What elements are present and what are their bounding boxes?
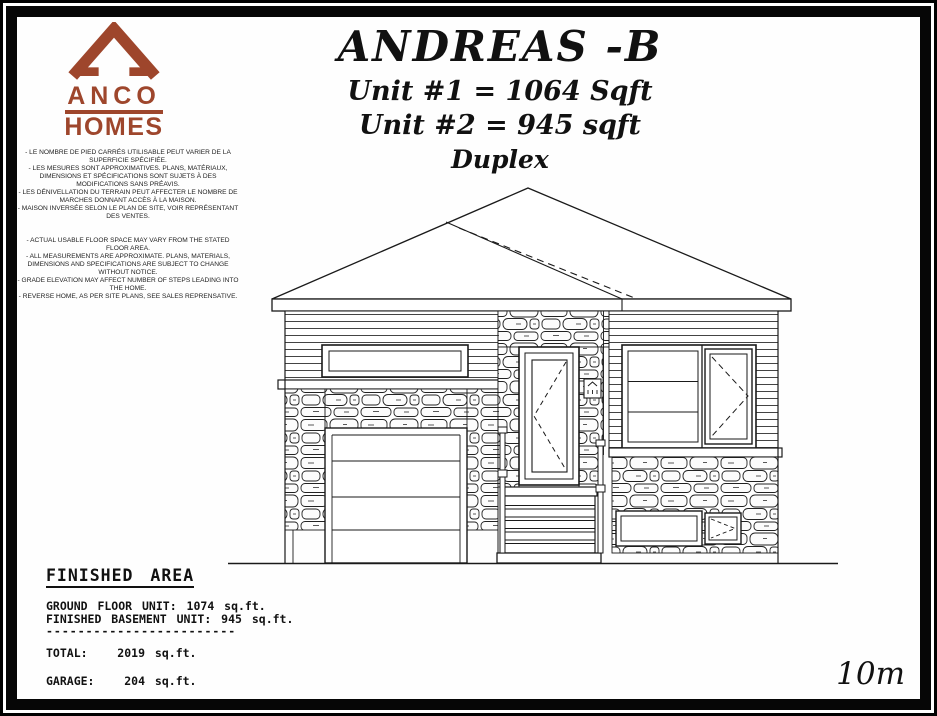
entry-steps [497, 487, 601, 563]
elevation-linework [228, 188, 838, 564]
disclaimer-english-item: - ALL MEASUREMENTS ARE APPROXIMATE. PLAN… [16, 253, 240, 277]
disclaimer-french-item: - MAISON INVERSÉE SELON LE PLAN DE SITE,… [16, 205, 240, 221]
disclaimer-french-item: - LES DÉNIVELLATION DU TERRAIN PEUT AFFE… [16, 189, 240, 205]
house-roof-icon [66, 22, 162, 82]
unit2-area: Unit #2 = 945 sqft [290, 110, 710, 141]
disclaimer-french-item: - LES MESURES SONT APPROXIMATIVES. PLANS… [16, 165, 240, 189]
plan-title: ANDREAS -B [290, 24, 710, 70]
hip-roof [272, 188, 791, 311]
garage-door [325, 428, 467, 563]
entry-door [519, 347, 579, 485]
main-window [622, 345, 756, 448]
left-unit-wall [278, 311, 500, 563]
logo-text-anco: ANCO [65, 84, 163, 114]
building-type: Duplex [290, 145, 710, 174]
disclaimer-english-item: - ACTUAL USABLE FLOOR SPACE MAY VARY FRO… [16, 237, 240, 253]
transom-window [322, 345, 468, 377]
disclaimer-gap [16, 221, 240, 237]
disclaimer-french-item: - LE NOMBRE DE PIED CARRÉS UTILISABLE PE… [16, 149, 240, 165]
finished-area-block: FINISHED AREA GROUND FLOOR UNIT: 1074 sq… [46, 566, 293, 688]
scale-label: 10m [836, 656, 905, 692]
plan-sheet: ANCO HOMES - LE NOMBRE DE PIED CARRÉS UT… [0, 0, 937, 716]
disclaimer-english-item: - GRADE ELEVATION MAY AFFECT NUMBER OF S… [16, 277, 240, 293]
right-unit-wall [609, 311, 782, 563]
entry-section [497, 311, 610, 563]
basement-window-casement [705, 513, 741, 544]
address-plaque [584, 379, 601, 398]
disclaimer-block: - LE NOMBRE DE PIED CARRÉS UTILISABLE PE… [16, 149, 240, 301]
logo-text-homes: HOMES [58, 114, 170, 142]
company-logo: ANCO HOMES [58, 22, 170, 142]
finished-area-divider: ------------------------ [46, 626, 293, 637]
finished-area-garage: GARAGE: 204 sq.ft. [46, 674, 293, 688]
disclaimer-english-item: - REVERSE HOME, AS PER SITE PLANS, SEE S… [16, 293, 240, 301]
finished-area-total: TOTAL: 2019 sq.ft. [46, 646, 293, 660]
unit1-area: Unit #1 = 1064 Sqft [290, 76, 710, 107]
left-ledge [278, 380, 500, 389]
right-ledge [609, 448, 782, 457]
title-block: ANDREAS -B Unit #1 = 1064 Sqft Unit #2 =… [290, 24, 710, 174]
finished-area-heading: FINISHED AREA [46, 566, 194, 588]
basement-window-wide [616, 511, 702, 546]
